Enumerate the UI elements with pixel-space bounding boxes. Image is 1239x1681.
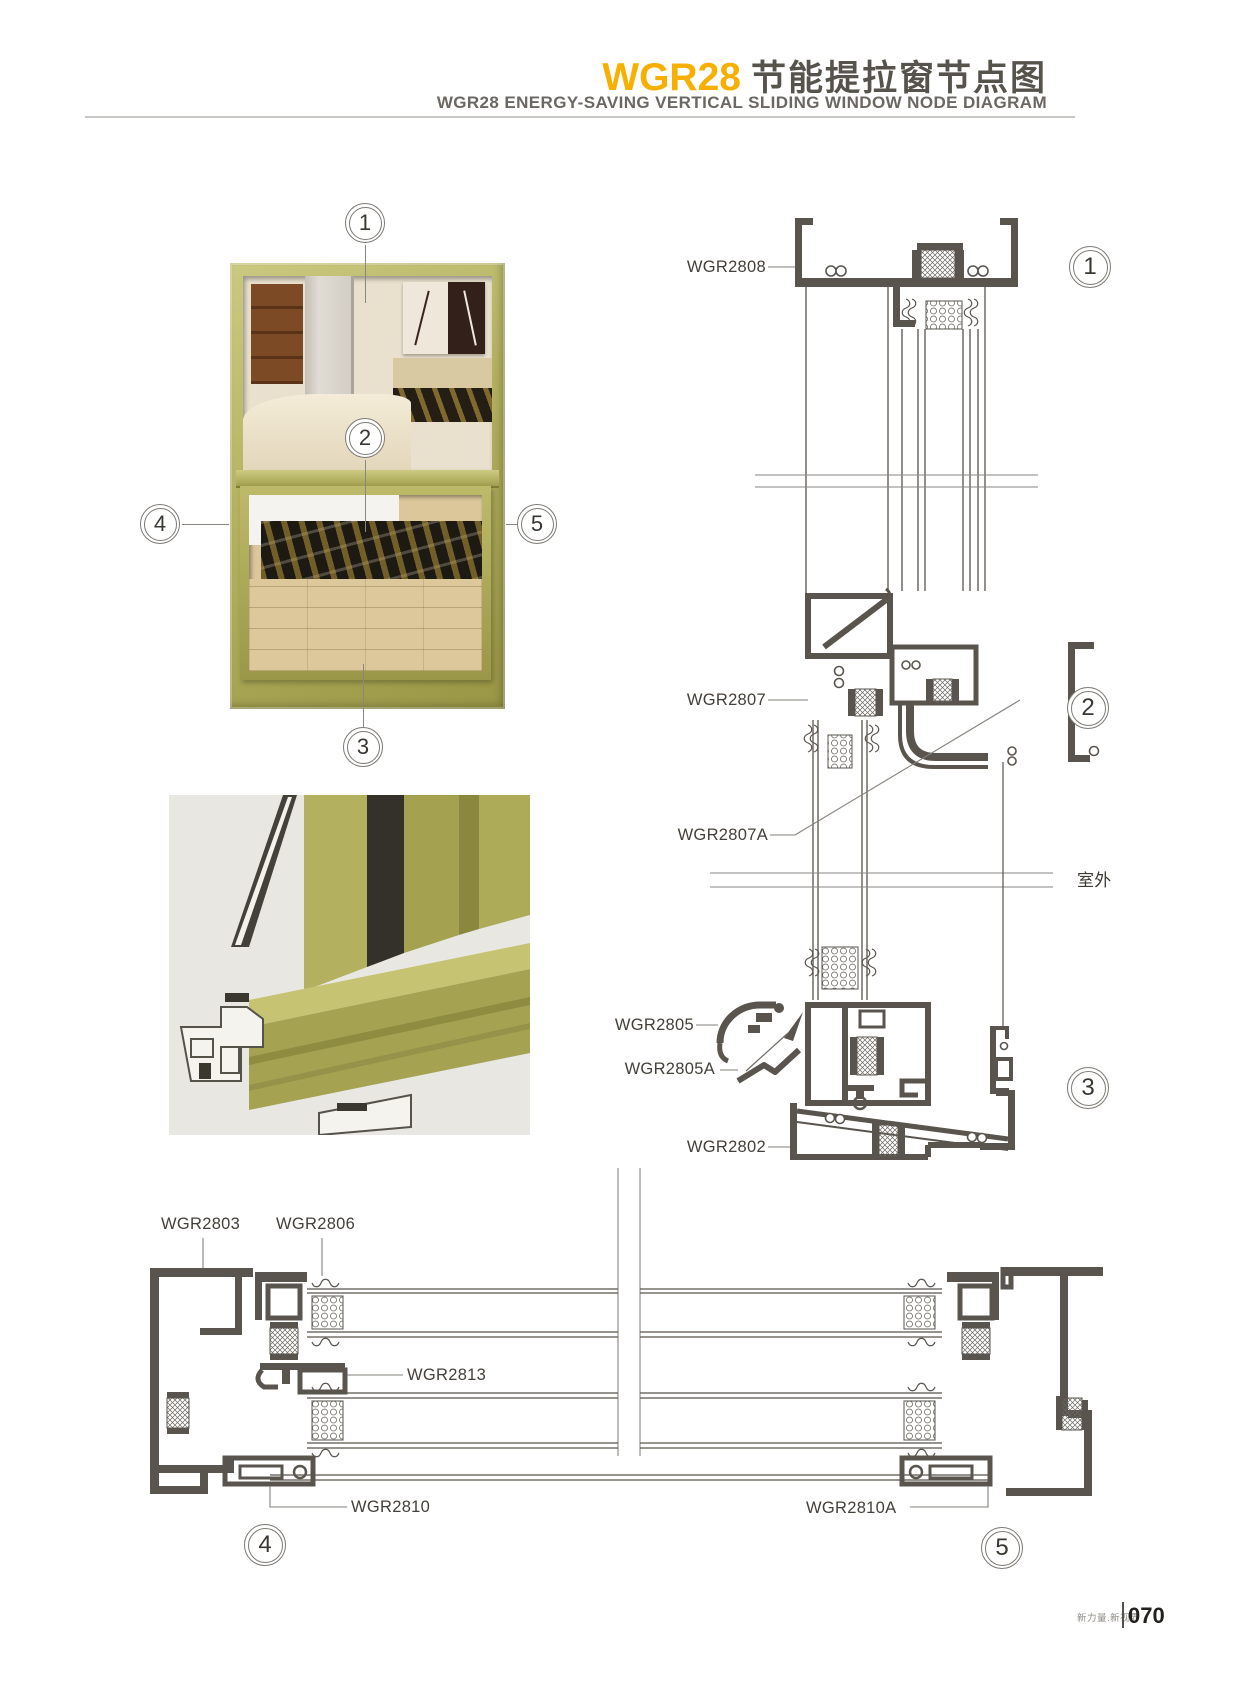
callout-number: 2: [346, 419, 384, 457]
callout-number: 1: [1070, 247, 1110, 287]
label-wgr2813: WGR2813: [407, 1366, 486, 1385]
callout-number: 5: [982, 1528, 1022, 1568]
callout-number: 5: [518, 505, 556, 543]
leader-photo-2: [365, 460, 366, 532]
interlock-profile: [258, 1363, 345, 1392]
label-wgr2807a: WGR2807A: [663, 826, 768, 845]
head-thermal-break: [921, 250, 955, 278]
leader-photo-1: [365, 245, 366, 303]
glass-pane-lines: [270, 1289, 990, 1480]
callout-photo-5: 5: [517, 504, 557, 544]
leader-photo-3: [363, 664, 364, 727]
label-outdoor: 室外: [1077, 866, 1112, 891]
callout-number: 4: [141, 505, 179, 543]
footer-divider: [1122, 1602, 1124, 1628]
upper-glass-lines: [806, 287, 985, 595]
callout-photo-1: 1: [345, 203, 385, 243]
detail-circle-4: 4: [244, 1524, 286, 1566]
leader-photo-5: [506, 524, 517, 525]
outdoor-break-lines: [710, 873, 1053, 887]
photo-shelving: [251, 284, 303, 384]
page-number: 070: [1128, 1603, 1165, 1629]
upper-break-lines: [755, 475, 1038, 487]
label-wgr2808: WGR2808: [678, 258, 766, 277]
photo-wall-art: [403, 282, 485, 354]
label-wgr2810: WGR2810: [351, 1498, 430, 1517]
glass-spacer-top: [926, 301, 962, 329]
label-wgr2803: WGR2803: [161, 1215, 240, 1234]
callout-photo-4: 4: [140, 504, 180, 544]
glass-spacers: [312, 1296, 935, 1440]
callout-number: 2: [1068, 688, 1108, 728]
label-wgr2802: WGR2802: [678, 1138, 766, 1157]
callout-number: 3: [1068, 1068, 1108, 1108]
profile-corner-render: [169, 795, 530, 1135]
window-photo: [230, 263, 505, 709]
center-break-lines: [618, 1168, 640, 1456]
glazing-gaskets: [312, 1279, 935, 1457]
screen-track-profile: [990, 1028, 1011, 1094]
detail-circle-5: 5: [981, 1527, 1023, 1569]
detail-circle-2: 2: [1067, 687, 1109, 729]
photo-art-branch: [463, 290, 477, 345]
glass-spacer-bottom: [822, 947, 858, 989]
label-wgr2806: WGR2806: [276, 1215, 355, 1234]
label-wgr2810a: WGR2810A: [806, 1499, 896, 1518]
catalog-page: WGR28节能提拉窗节点图 WGR28 ENERGY-SAVING VERTIC…: [0, 0, 1239, 1681]
corner-render-svg: [169, 795, 530, 1135]
photo-rug: [261, 521, 482, 579]
horizontal-section-drawing: [140, 1160, 1110, 1520]
detail-circle-1: 1: [1069, 246, 1111, 288]
leader-photo-4: [182, 524, 229, 525]
callout-photo-2: 2: [345, 418, 385, 458]
photo-bed: [243, 394, 411, 470]
callout-photo-3: 3: [343, 727, 383, 767]
header-divider: [85, 116, 1075, 118]
callout-number: 3: [344, 728, 382, 766]
label-wgr2805: WGR2805: [606, 1016, 694, 1035]
right-jamb-profile: [1003, 1267, 1103, 1496]
callout-number: 4: [245, 1525, 285, 1565]
label-wgr2807: WGR2807: [678, 691, 766, 710]
photo-wood-floor: [249, 579, 482, 671]
label-wgr2805a: WGR2805A: [610, 1060, 715, 1079]
sill-assembly: [720, 1003, 1015, 1160]
page-subtitle: WGR28 ENERGY-SAVING VERTICAL SLIDING WIN…: [0, 93, 1047, 113]
left-sash-profile: [255, 1272, 307, 1360]
glass-spacer-mid: [828, 735, 852, 768]
callout-number: 1: [346, 204, 384, 242]
right-sash-profile: [947, 1272, 999, 1360]
photo-art-branch: [414, 291, 429, 346]
detail-circle-3: 3: [1067, 1067, 1109, 1109]
